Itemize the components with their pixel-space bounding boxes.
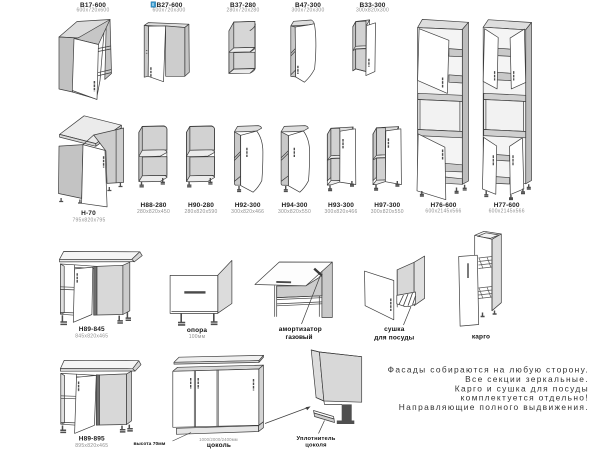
svg-text:100мм: 100мм — [189, 334, 206, 340]
svg-text:высота 70мм: высота 70мм — [134, 441, 166, 447]
svg-text:795х820х795: 795х820х795 — [72, 217, 105, 223]
svg-text:Н97-300: Н97-300 — [374, 202, 400, 209]
svg-text:Н93-300: Н93-300 — [328, 202, 354, 209]
svg-text:Н-70: Н-70 — [81, 210, 96, 217]
svg-text:300х820х300: 300х820х300 — [356, 8, 389, 14]
svg-text:Н92-300: Н92-300 — [235, 202, 261, 209]
svg-text:Н89-845: Н89-845 — [79, 326, 105, 333]
svg-text:Н88-280: Н88-280 — [141, 202, 167, 209]
svg-text:300х720х300: 300х720х300 — [291, 8, 324, 14]
svg-text:600х720х300: 600х720х300 — [152, 8, 185, 14]
svg-text:цоколь: цоколь — [207, 442, 231, 449]
svg-text:газовый: газовый — [286, 333, 313, 341]
svg-text:600х2145х566: 600х2145х566 — [425, 209, 461, 215]
svg-text:амортизатор: амортизатор — [279, 326, 322, 333]
svg-text:для посуды: для посуды — [374, 334, 414, 341]
svg-text:Направляющие полного выдвижени: Направляющие полного выдвижения. — [399, 402, 589, 412]
svg-text:Уплотнитель: Уплотнитель — [296, 436, 335, 442]
svg-text:сушка: сушка — [384, 326, 405, 333]
svg-text:300х820х466: 300х820х466 — [231, 209, 264, 215]
svg-text:опора: опора — [187, 327, 208, 334]
svg-text:895х820х465: 895х820х465 — [75, 443, 108, 449]
svg-text:300х820х550: 300х820х550 — [278, 209, 311, 215]
svg-text:цоколя: цоколя — [305, 443, 326, 449]
svg-text:300х820х550: 300х820х550 — [371, 209, 404, 215]
svg-text:280х820х590: 280х820х590 — [184, 209, 217, 215]
svg-text:845х820х465: 845х820х465 — [75, 333, 108, 339]
svg-text:300х820х466: 300х820х466 — [324, 209, 357, 215]
svg-text:280х720х280: 280х720х280 — [226, 8, 259, 14]
svg-text:600х720х600: 600х720х600 — [76, 8, 109, 14]
svg-text:Н90-280: Н90-280 — [188, 202, 214, 209]
svg-text:Н94-300: Н94-300 — [282, 202, 308, 209]
svg-text:карго: карго — [472, 333, 490, 340]
svg-text:Н89-895: Н89-895 — [79, 436, 105, 443]
svg-text:600х2145х566: 600х2145х566 — [489, 209, 525, 215]
svg-text:280х820х450: 280х820х450 — [137, 209, 170, 215]
